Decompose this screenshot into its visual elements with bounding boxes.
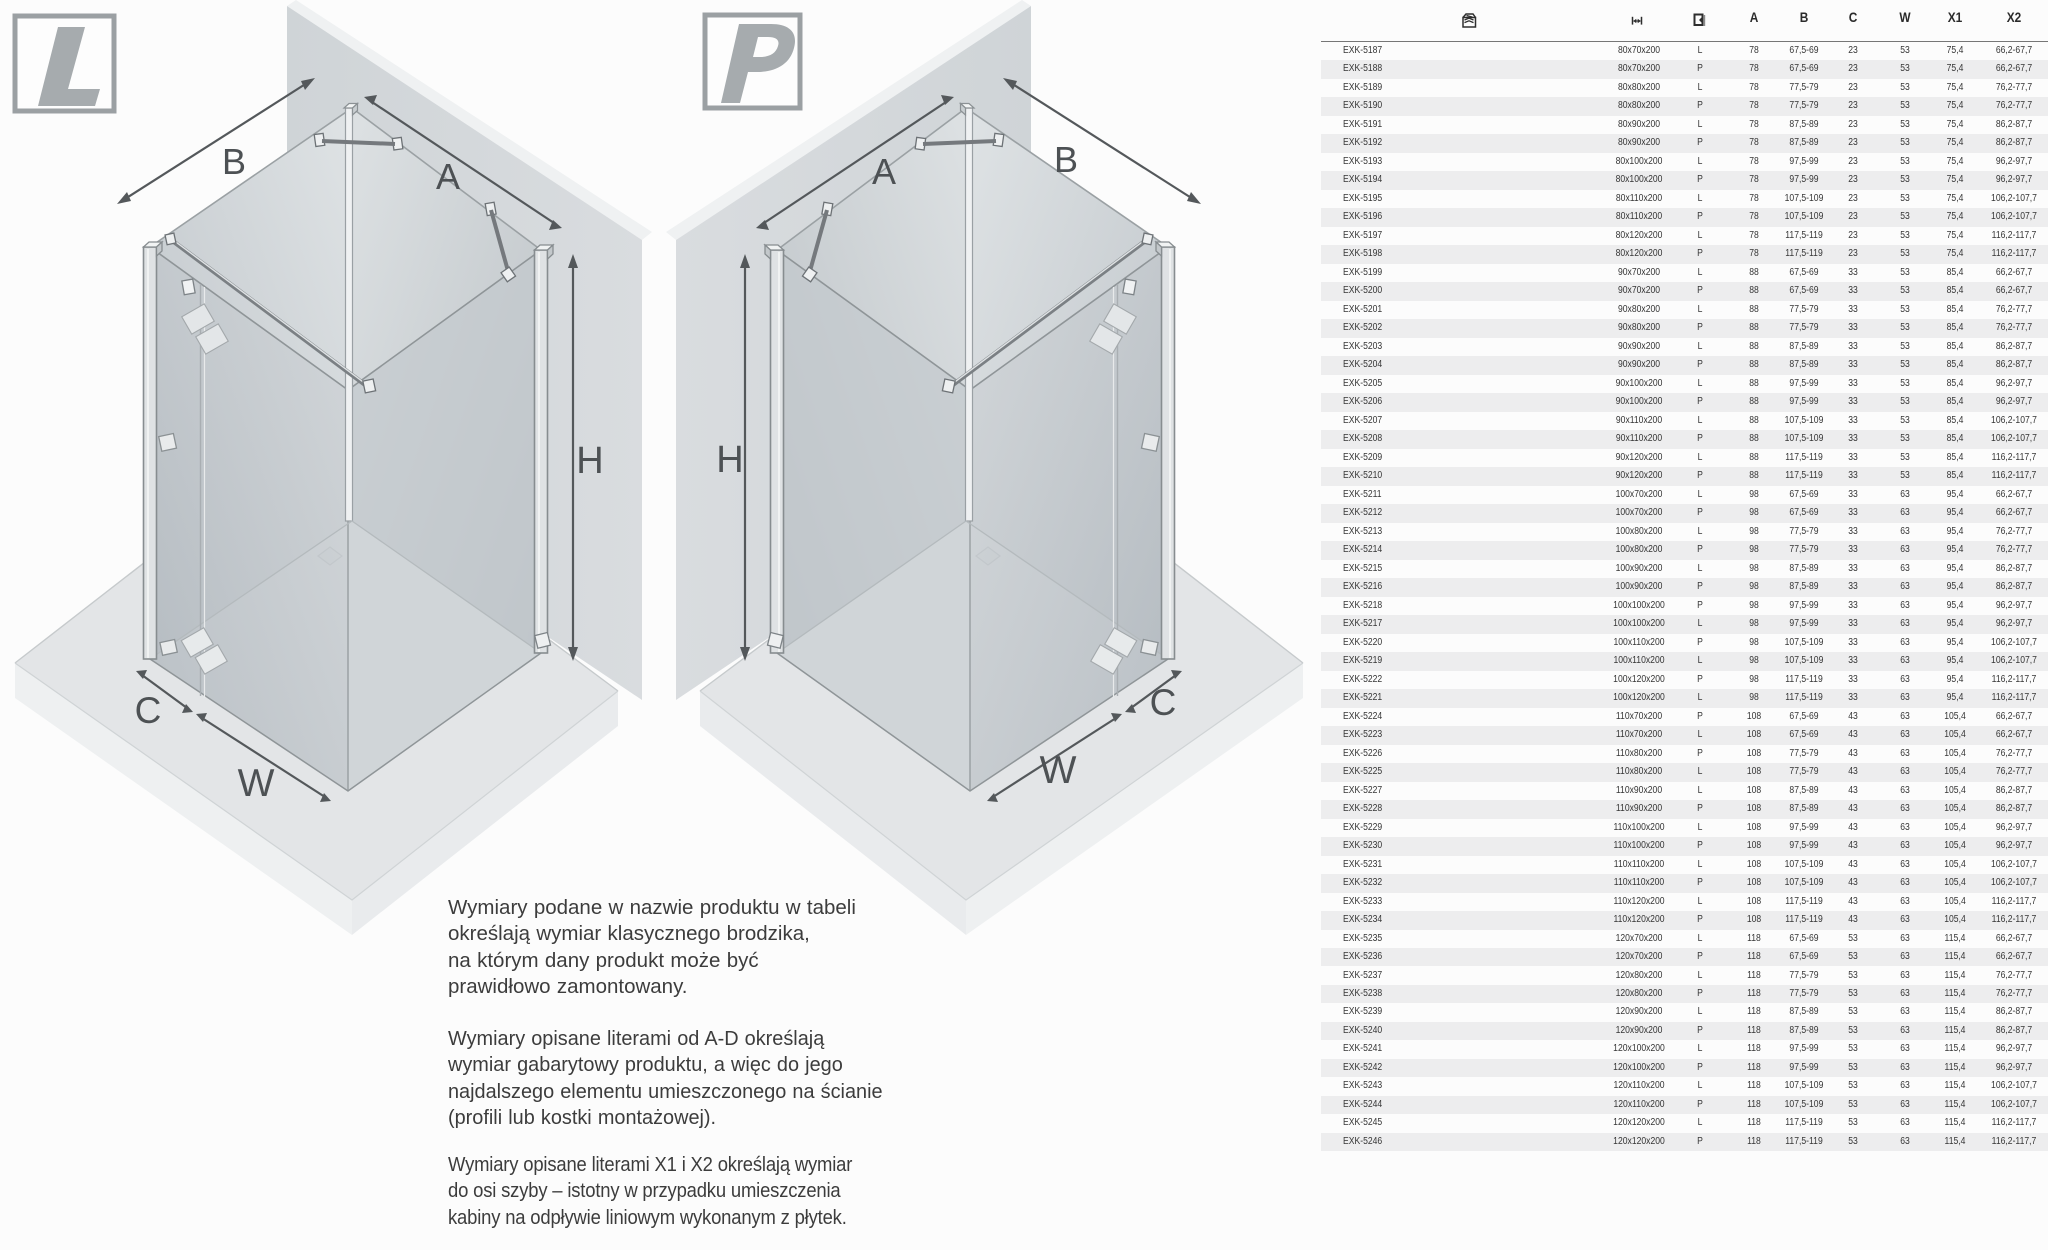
svg-text:B: B [1054, 139, 1078, 180]
svg-text:C: C [135, 690, 162, 731]
svg-text:W: W [238, 762, 275, 805]
svg-text:A: A [872, 151, 896, 192]
svg-text:H: H [716, 439, 743, 481]
svg-text:H: H [576, 440, 603, 482]
svg-text:C: C [1150, 682, 1177, 723]
svg-text:W: W [1040, 749, 1077, 792]
svg-text:A: A [436, 156, 460, 197]
svg-text:B: B [222, 141, 246, 182]
